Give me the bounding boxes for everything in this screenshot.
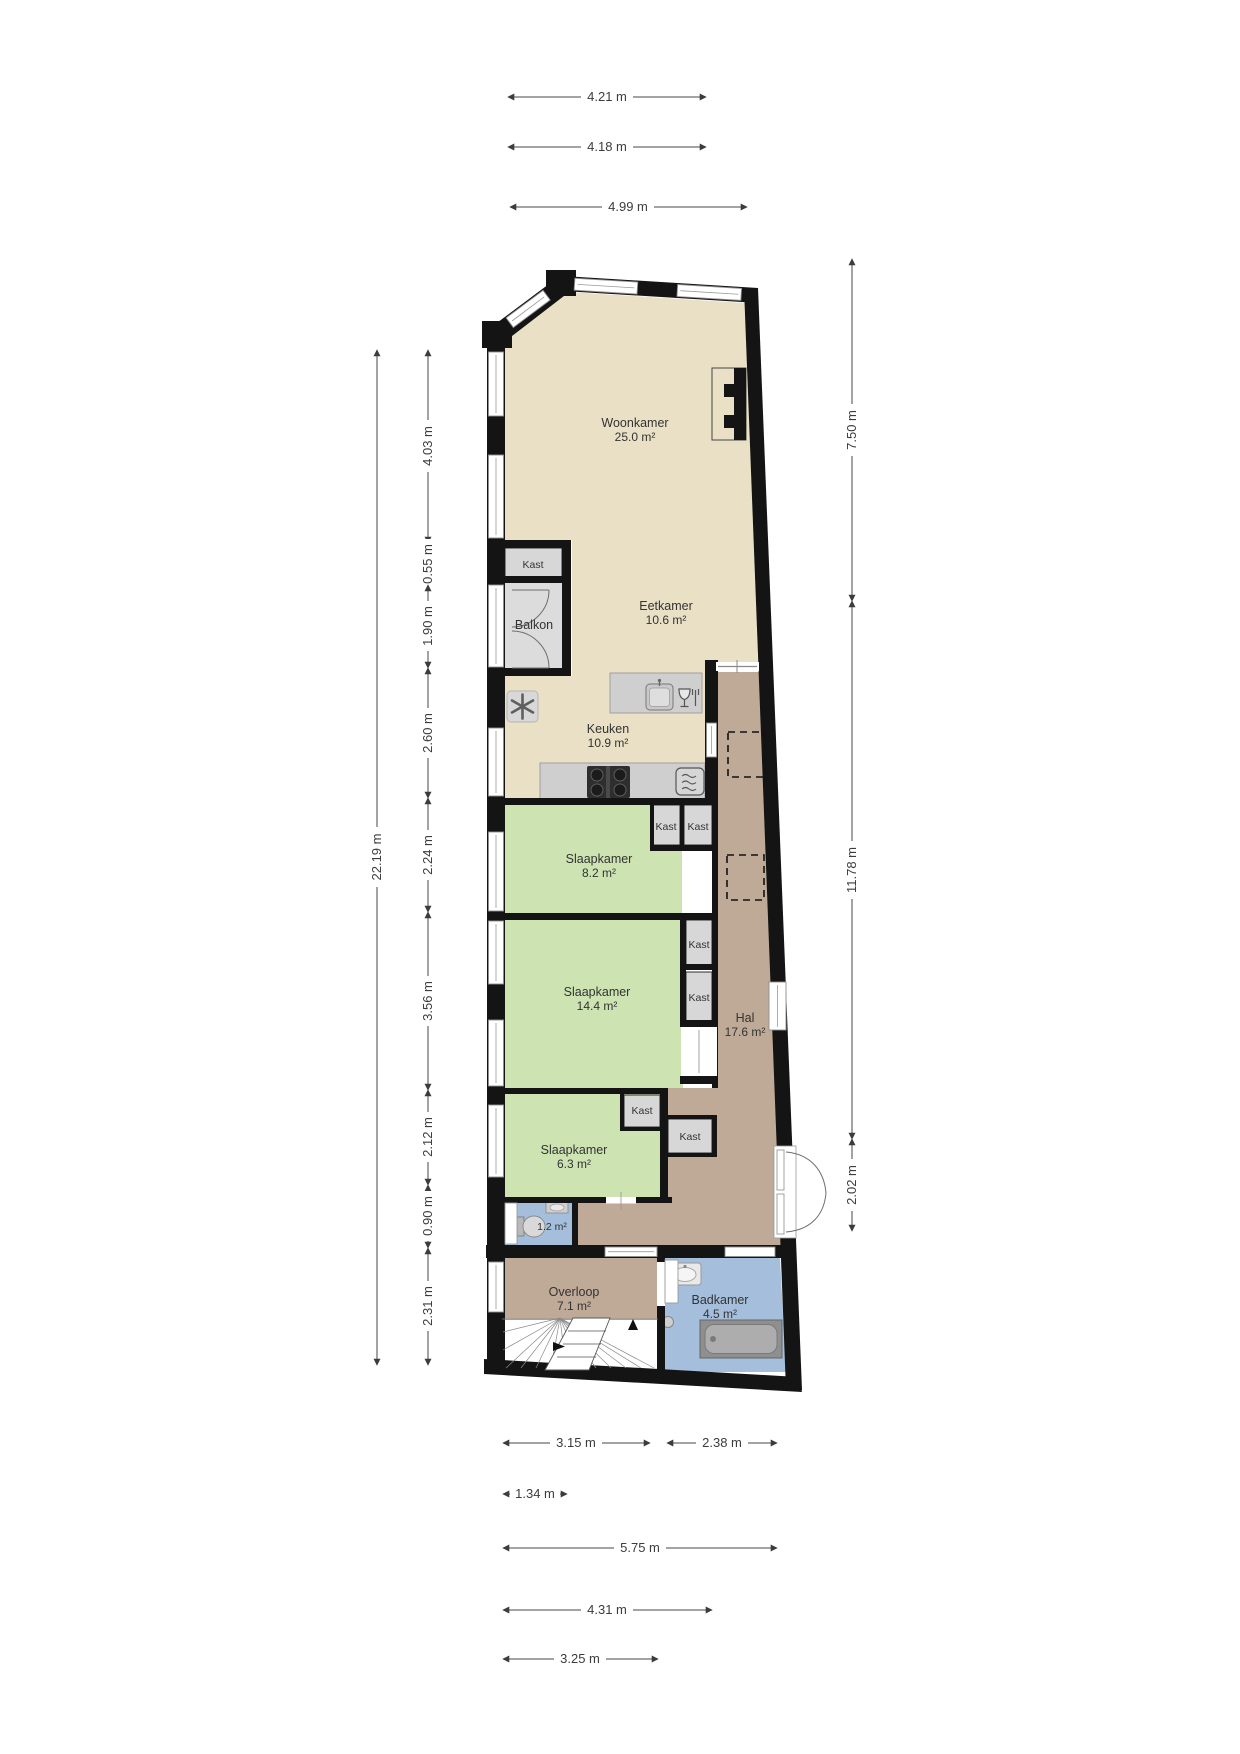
dim-bottom-6: 3.25 m bbox=[503, 1651, 658, 1667]
dim-bottom-1: 3.15 m bbox=[503, 1435, 650, 1451]
dim-left-8: 0.90 m bbox=[420, 1185, 436, 1248]
dim-label-left-1: 4.03 m bbox=[420, 426, 435, 466]
wall-s3-bottom bbox=[504, 1197, 672, 1203]
label-keuken-name: Keuken bbox=[587, 722, 629, 736]
wall-balkon-bottom bbox=[504, 668, 571, 676]
room-floors bbox=[502, 292, 786, 1372]
toilet-sink-icon bbox=[546, 1202, 568, 1213]
wall-k2-left bbox=[680, 920, 686, 1023]
dim-right-1: 7.50 m bbox=[844, 259, 860, 601]
dim-bottom-4: 5.75 m bbox=[503, 1540, 777, 1556]
label-kast-top: Kast bbox=[522, 559, 543, 571]
dim-label-left-8: 0.90 m bbox=[420, 1196, 435, 1236]
wall-k2-bottom bbox=[680, 1020, 718, 1027]
dim-label-left-3: 1.90 m bbox=[420, 606, 435, 646]
opening-hal-badkamer bbox=[725, 1247, 775, 1257]
label-balkon: Balkon bbox=[515, 618, 553, 632]
window-left-4 bbox=[489, 832, 504, 911]
wall-kast-bottom bbox=[504, 576, 571, 583]
wall-kitchen-s1 bbox=[504, 798, 718, 805]
label-kast-s2b: Kast bbox=[688, 992, 709, 1004]
dim-label-bottom-1: 3.15 m bbox=[556, 1435, 596, 1450]
window-right bbox=[769, 982, 786, 1030]
window-left-8 bbox=[489, 1262, 504, 1312]
label-badkamer-area: 4.5 m² bbox=[703, 1307, 737, 1321]
label-kast-s1a: Kast bbox=[655, 821, 676, 833]
dim-label-bottom-3: 1.34 m bbox=[515, 1486, 555, 1501]
dim-label-left-total: 22.19 m bbox=[369, 834, 384, 881]
floorplan-svg: Woonkamer 25.0 m² Eetkamer 10.6 m² Keuke… bbox=[0, 0, 1240, 1754]
dim-label-left-6: 3.56 m bbox=[420, 981, 435, 1021]
label-slaapkamer3-area: 6.3 m² bbox=[557, 1157, 591, 1171]
label-hal-area: 17.6 m² bbox=[725, 1025, 766, 1039]
wall-k1-left bbox=[650, 803, 654, 848]
dim-left-1: 4.03 m bbox=[420, 350, 436, 543]
dim-left-4: 2.60 m bbox=[420, 668, 436, 798]
door-toilet bbox=[505, 1203, 517, 1244]
dim-label-left-7: 2.12 m bbox=[420, 1117, 435, 1157]
wall-toilet-right bbox=[572, 1202, 578, 1245]
wall-kast-top bbox=[504, 540, 571, 548]
dim-label-bottom-6: 3.25 m bbox=[560, 1651, 600, 1666]
label-slaapkamer3-name: Slaapkamer bbox=[541, 1143, 608, 1157]
wall-corner-block-left bbox=[482, 321, 512, 348]
dim-label-left-5: 2.24 m bbox=[420, 835, 435, 875]
wall-k2-mid bbox=[680, 964, 718, 970]
wall-s2-s3 bbox=[504, 1088, 668, 1094]
floorplan-page: Woonkamer 25.0 m² Eetkamer 10.6 m² Keuke… bbox=[0, 0, 1240, 1754]
dim-bottom-2: 2.38 m bbox=[667, 1435, 777, 1451]
dim-label-left-9: 2.31 m bbox=[420, 1286, 435, 1326]
window-left-2 bbox=[489, 455, 504, 538]
wall-s3-right bbox=[660, 1088, 668, 1202]
label-overloop-name: Overloop bbox=[549, 1285, 600, 1299]
label-badkamer-name: Badkamer bbox=[692, 1293, 749, 1307]
fan-icon bbox=[507, 691, 538, 722]
dim-top-1: 4.21 m bbox=[508, 89, 706, 105]
label-kast-s1b: Kast bbox=[687, 821, 708, 833]
label-slaapkamer1-area: 8.2 m² bbox=[582, 866, 616, 880]
dim-label-right-3: 2.02 m bbox=[844, 1165, 859, 1205]
sink-icon bbox=[646, 679, 673, 710]
wall-corner-block-top bbox=[546, 270, 576, 296]
dim-left-6: 3.56 m bbox=[420, 912, 436, 1090]
window-left-1 bbox=[489, 352, 504, 416]
door-double-exterior bbox=[774, 1146, 826, 1238]
wall-balkon-right bbox=[562, 540, 571, 676]
label-woonkamer-area: 25.0 m² bbox=[615, 430, 656, 444]
wall-s1-s2 bbox=[504, 913, 718, 920]
dim-label-top-1: 4.21 m bbox=[587, 89, 627, 104]
label-kast-s2a: Kast bbox=[688, 939, 709, 951]
window-balkon bbox=[489, 585, 504, 667]
dim-left-9: 2.31 m bbox=[420, 1248, 436, 1365]
window-left-5 bbox=[489, 921, 504, 984]
wall-k1-mid bbox=[680, 803, 684, 848]
window-kitchen-hal bbox=[707, 723, 717, 757]
dim-label-bottom-5: 4.31 m bbox=[587, 1602, 627, 1617]
wall-s2-door-nib bbox=[680, 1076, 718, 1084]
dim-top-3: 4.99 m bbox=[510, 199, 747, 215]
dim-bottom-5: 4.31 m bbox=[503, 1602, 712, 1618]
door-badkamer bbox=[657, 1260, 678, 1306]
label-eetkamer-area: 10.6 m² bbox=[646, 613, 687, 627]
wall-k3out-bottom bbox=[668, 1153, 717, 1157]
dim-label-bottom-2: 2.38 m bbox=[702, 1435, 742, 1450]
label-woonkamer-name: Woonkamer bbox=[601, 416, 668, 430]
label-slaapkamer2-area: 14.4 m² bbox=[577, 999, 618, 1013]
dim-right-3: 2.02 m bbox=[844, 1139, 860, 1231]
window-bottom bbox=[605, 1247, 657, 1257]
dim-left-7: 2.12 m bbox=[420, 1090, 436, 1185]
label-hal-name: Hal bbox=[736, 1011, 755, 1025]
dim-left-3: 1.90 m bbox=[420, 585, 436, 668]
dim-left-total: 22.19 m bbox=[369, 350, 385, 1365]
oven-icon bbox=[676, 768, 704, 795]
label-kast-s3in: Kast bbox=[631, 1105, 652, 1117]
wall-k1-bottom bbox=[650, 845, 718, 851]
wall-k3in-bottom bbox=[620, 1127, 664, 1131]
dim-label-left-2: 0.55 m bbox=[420, 544, 435, 584]
dim-left-5: 2.24 m bbox=[420, 798, 436, 912]
label-toilet-area: 1.2 m² bbox=[537, 1221, 567, 1233]
dim-left-2: 0.55 m bbox=[420, 539, 436, 589]
dim-label-top-2: 4.18 m bbox=[587, 139, 627, 154]
dim-label-left-4: 2.60 m bbox=[420, 713, 435, 753]
wall-k3in-left bbox=[620, 1093, 624, 1129]
dim-label-right-1: 7.50 m bbox=[844, 410, 859, 450]
wall-k3out-top bbox=[668, 1115, 717, 1119]
dim-label-right-2: 11.78 m bbox=[844, 847, 859, 893]
label-keuken-area: 10.9 m² bbox=[588, 736, 629, 750]
dim-label-bottom-4: 5.75 m bbox=[620, 1540, 660, 1555]
window-left-6 bbox=[489, 1020, 504, 1086]
label-slaapkamer1-name: Slaapkamer bbox=[566, 852, 633, 866]
dim-top-2: 4.18 m bbox=[508, 139, 706, 155]
window-left-3 bbox=[489, 728, 504, 796]
label-eetkamer-name: Eetkamer bbox=[639, 599, 693, 613]
dim-right-2: 11.78 m bbox=[844, 601, 860, 1139]
dim-bottom-3: 1.34 m bbox=[503, 1486, 567, 1502]
label-overloop-area: 7.1 m² bbox=[557, 1299, 591, 1313]
label-slaapkamer2-name: Slaapkamer bbox=[564, 985, 631, 999]
dim-label-top-3: 4.99 m bbox=[608, 199, 648, 214]
bathtub-icon bbox=[700, 1320, 782, 1358]
window-left-7 bbox=[489, 1105, 504, 1177]
stove-icon bbox=[587, 766, 630, 798]
label-kast-s3out: Kast bbox=[679, 1131, 700, 1143]
door-slaapkamer2 bbox=[681, 1027, 717, 1076]
wall-k3out-right bbox=[712, 1115, 717, 1157]
